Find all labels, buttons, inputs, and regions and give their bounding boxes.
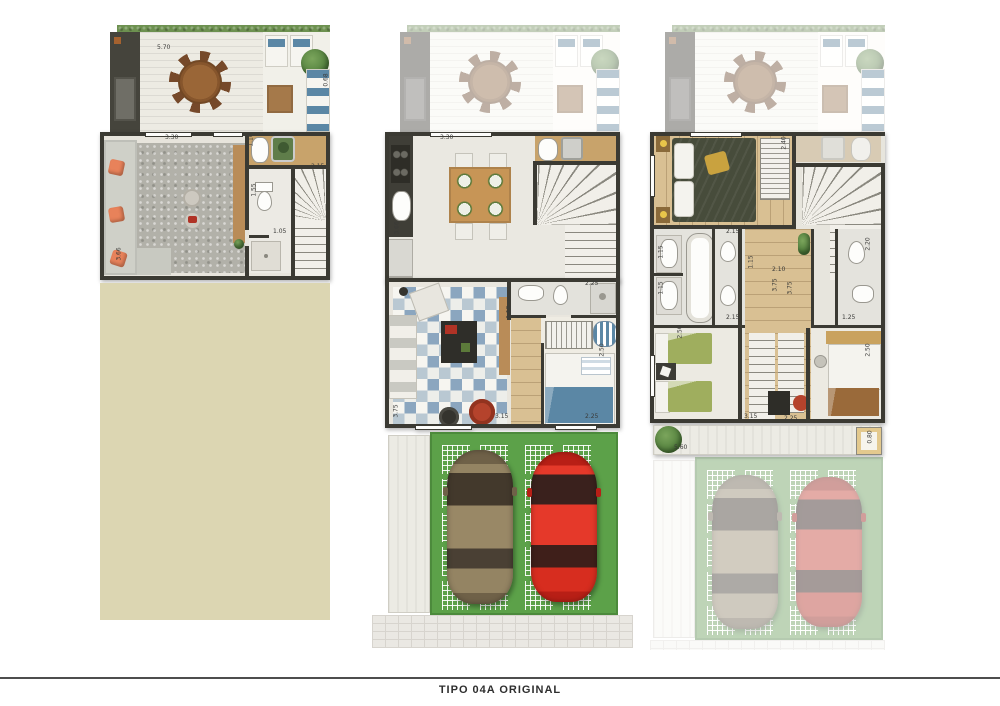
bathtub — [686, 233, 714, 323]
window — [415, 425, 472, 430]
wardrobe — [760, 138, 790, 200]
wall — [806, 328, 810, 423]
car-mirror — [527, 488, 532, 497]
window — [650, 355, 655, 397]
window — [690, 132, 742, 137]
toilet — [553, 285, 568, 305]
decor-red — [188, 216, 197, 223]
wall — [795, 163, 885, 167]
entry-tree — [655, 426, 682, 453]
wall — [571, 315, 616, 318]
car-mirror — [512, 487, 517, 496]
floor-lamp — [399, 287, 408, 296]
entry-gate — [856, 427, 882, 455]
wall — [653, 225, 796, 229]
wardrobe — [545, 321, 593, 349]
orange-pillow — [108, 159, 126, 177]
washer-door — [278, 142, 289, 153]
wall — [541, 343, 544, 428]
headboard-desk — [826, 331, 881, 344]
wall — [738, 328, 742, 423]
plan-terrace-living: 5.700.683.301.102.151.551.053.66 — [95, 25, 330, 620]
stairs-straight — [295, 221, 326, 276]
wall — [650, 419, 885, 423]
plant — [234, 239, 244, 249]
bed-mattress — [828, 344, 881, 390]
lamp — [660, 140, 667, 147]
wall — [100, 132, 104, 280]
laundry-sink — [851, 137, 871, 161]
bed-blanket-blue — [545, 387, 613, 423]
bed-pillow — [674, 181, 694, 217]
laundry-sink — [251, 137, 269, 163]
orange-pillow — [108, 206, 125, 223]
wall — [385, 282, 389, 428]
window — [145, 132, 192, 137]
wall — [326, 132, 330, 280]
garden-holder — [385, 432, 620, 648]
side-table — [183, 189, 201, 207]
wall — [738, 229, 742, 325]
footer-divider — [0, 677, 1000, 679]
bedrooms-floor — [650, 25, 885, 457]
wall — [507, 278, 511, 320]
wall — [616, 282, 620, 428]
car-mirror — [596, 488, 601, 497]
stairs-winder — [295, 169, 326, 221]
sofa — [389, 315, 417, 399]
wall — [653, 325, 745, 328]
car-mirror — [708, 512, 713, 521]
living-floor — [95, 25, 330, 282]
shower-drain — [264, 254, 268, 258]
hall-wood-floor — [511, 317, 541, 428]
toilet — [720, 285, 736, 306]
decor-red — [445, 325, 457, 334]
wall — [712, 229, 715, 325]
bath-sink — [660, 281, 678, 310]
plant — [798, 233, 810, 255]
window — [555, 425, 597, 430]
garden-holder-ghost — [650, 457, 885, 650]
sidewalk — [372, 615, 633, 648]
plan-kitchen-living: 3.303.662.251.152.503.753.152.25 — [385, 25, 620, 648]
shower-head — [599, 293, 606, 300]
wall — [385, 278, 620, 282]
garden-garage — [650, 457, 885, 650]
concrete-path — [653, 460, 695, 638]
toilet — [848, 241, 865, 264]
bed-pillow — [674, 143, 694, 179]
floorplan-sheet: 5.700.683.301.102.151.551.053.66 — [0, 0, 1000, 706]
window — [213, 132, 243, 137]
wall — [811, 325, 885, 328]
plan-title: TIPO 04A ORIGINAL — [0, 684, 1000, 696]
car-gold — [447, 450, 513, 604]
wall — [881, 163, 885, 423]
washer — [821, 136, 845, 160]
decor-green — [461, 343, 470, 352]
wall — [653, 273, 683, 276]
bath-sink — [518, 285, 544, 301]
car-mirror — [443, 487, 448, 496]
tv-box — [768, 391, 790, 415]
garden-garage — [385, 432, 620, 648]
lower-lot-area — [100, 283, 330, 620]
wall — [511, 315, 546, 318]
bed-pillow — [581, 357, 611, 375]
wall — [100, 276, 330, 280]
bath-sink — [660, 239, 678, 268]
pouf-red — [469, 399, 495, 425]
wall — [811, 229, 814, 325]
car-mirror — [777, 512, 782, 521]
bed-blanket-brown — [828, 388, 879, 416]
crib — [593, 321, 617, 347]
desk-chair — [814, 355, 827, 368]
sidewalk — [650, 640, 885, 650]
window — [650, 155, 655, 197]
bed-blanket-green — [668, 381, 712, 412]
tv-panel — [233, 145, 245, 243]
car-mirror — [861, 513, 866, 522]
car-red — [531, 452, 597, 602]
wall — [249, 235, 269, 238]
bath-sink — [852, 285, 874, 303]
lamp — [660, 211, 667, 218]
car-red — [796, 477, 862, 627]
toilet — [257, 191, 272, 211]
living-bed-floor — [385, 25, 620, 432]
wall — [245, 132, 249, 230]
car-mirror — [792, 513, 797, 522]
wall — [835, 229, 838, 325]
sofa-chaise — [137, 248, 171, 275]
car-gold — [712, 475, 778, 629]
wall — [792, 136, 796, 229]
entry-strip — [653, 425, 881, 455]
toilet — [720, 241, 736, 262]
wall — [650, 132, 885, 136]
stairs-winder — [802, 167, 881, 225]
plan-bedrooms: 2.402.151.151.151.152.103.753.752.152.20… — [650, 25, 885, 650]
wall — [291, 169, 295, 280]
laundry-ghost — [795, 134, 881, 164]
bed-blanket-green — [668, 333, 712, 364]
wall — [249, 165, 326, 169]
concrete-path — [388, 435, 430, 613]
wall — [245, 246, 249, 280]
